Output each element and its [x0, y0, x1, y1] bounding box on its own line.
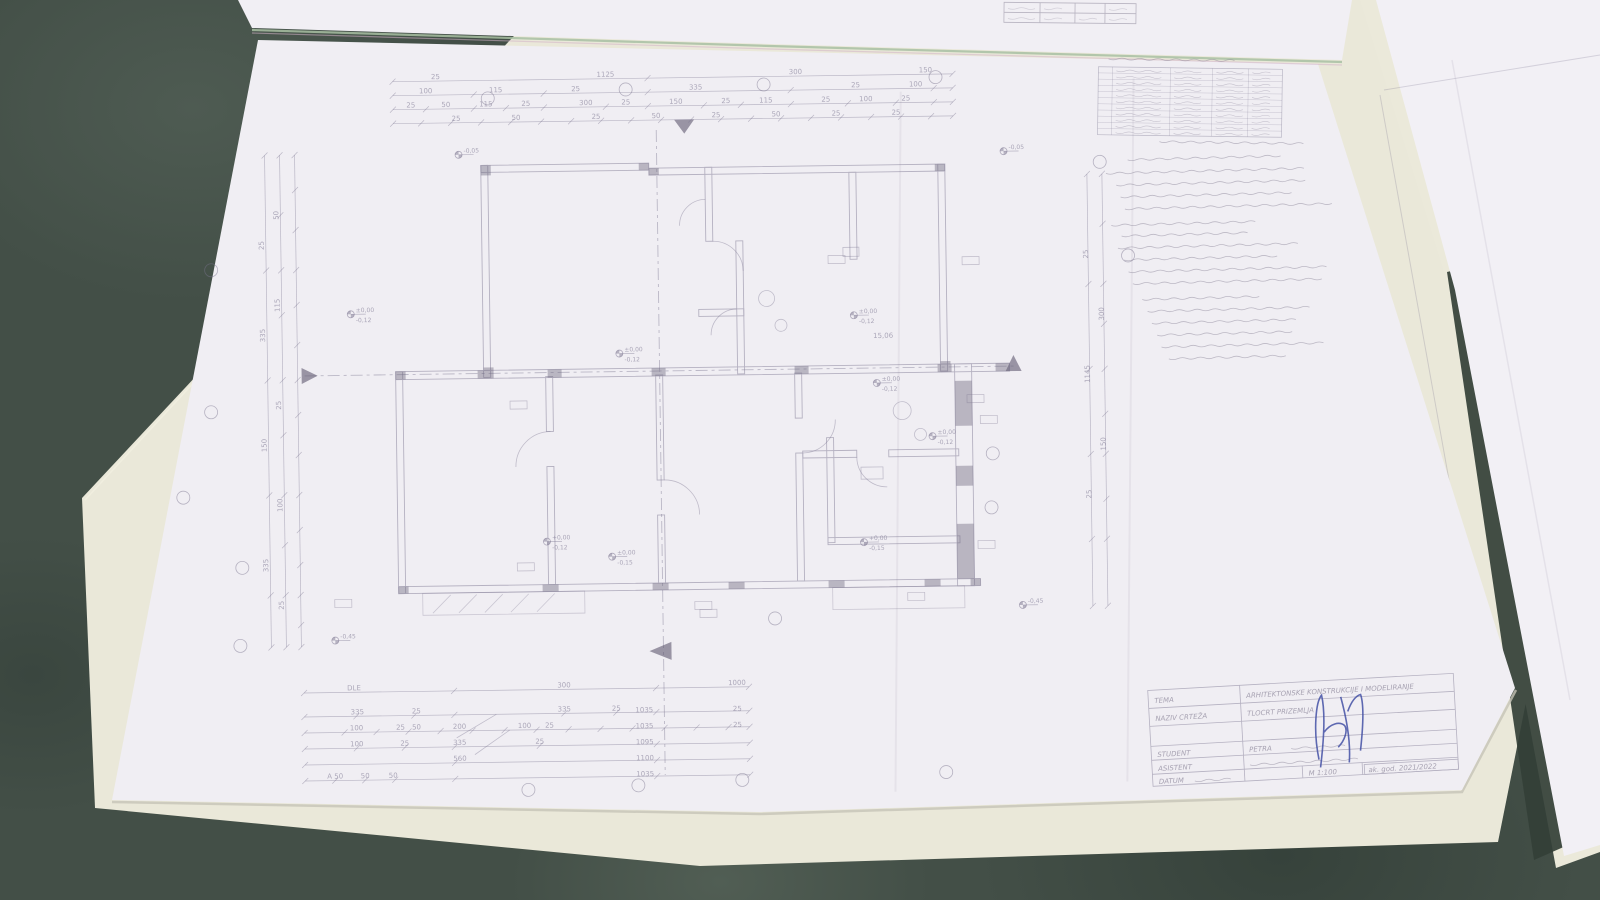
dim-label: 25: [821, 96, 830, 104]
dim-label: 25: [733, 705, 742, 713]
elevation-value: +0,00: [552, 534, 571, 541]
dim-label: 150: [1100, 437, 1108, 450]
dim-label: 25: [278, 601, 286, 610]
dim-label: 25: [721, 97, 730, 105]
dim-label: 100: [909, 80, 922, 88]
dim-label: 25: [396, 724, 405, 732]
dim-label: 335: [453, 739, 466, 747]
dim-label: 1035: [635, 706, 653, 714]
dim-label: 25: [412, 707, 421, 715]
dim-label: 25: [612, 705, 621, 713]
dim-label: 25: [545, 722, 554, 730]
dim-label: 25: [400, 740, 409, 748]
dim-label: 100: [276, 499, 284, 512]
title-value: PETRA: [1249, 745, 1272, 754]
dim-label: 50: [772, 110, 781, 118]
dim-label: 300: [557, 681, 570, 689]
elevation-value: ±0,00: [356, 307, 375, 314]
dim-label: 560: [453, 755, 466, 763]
dim-label: 335: [558, 705, 571, 713]
dim-label: 25: [535, 738, 544, 746]
elevation-value: -0,15: [617, 559, 633, 566]
elevation-value: -0,12: [859, 318, 875, 325]
elevation-value: -0,45: [1028, 598, 1044, 605]
surfaces: [82, 0, 1600, 868]
elevation-value: -0,15: [869, 545, 885, 552]
dim-label: 25: [592, 113, 601, 121]
elevation-value: -0,12: [938, 439, 954, 446]
elevation-value: ±0,00: [859, 308, 878, 315]
dim-label: 150: [669, 98, 682, 106]
dim-label: 1100: [636, 754, 654, 762]
dim-label: 25: [1085, 489, 1093, 498]
dim-label: 300: [789, 68, 802, 76]
elevation-value: ±0,00: [937, 429, 956, 436]
elevation-value: -0,05: [1008, 144, 1024, 151]
elevation-value: -0,12: [624, 356, 640, 363]
scale-value: M 1:100: [1308, 768, 1337, 778]
elevation-value: -0,45: [340, 633, 356, 640]
dim-label: 335: [259, 329, 267, 342]
drawing-photo: 2511253001501001152533525100255011525300…: [0, 0, 1600, 900]
dim-label: 1145: [1084, 365, 1092, 383]
dim-label: DLE: [347, 684, 361, 692]
dim-label: 50: [272, 211, 280, 220]
dim-label: 25: [733, 721, 742, 729]
dim-label: 25: [275, 401, 283, 410]
dim-label: 100: [419, 87, 432, 95]
dim-label: 100: [518, 722, 531, 730]
dim-label: 100: [859, 95, 872, 103]
dim-label: 50: [652, 112, 661, 120]
photo-scene: 2511253001501001152533525100255011525300…: [0, 0, 1600, 900]
dim-label: 1125: [596, 71, 614, 79]
dim-label: 335: [351, 708, 364, 716]
dim-label: 1095: [636, 738, 654, 746]
elevation-value: -0,12: [356, 317, 372, 324]
dim-label: 25: [621, 98, 630, 106]
dim-label: 25: [571, 85, 580, 93]
dim-label: 25: [1082, 250, 1090, 259]
dim-label: 50: [389, 772, 398, 780]
dim-label: 25: [452, 115, 461, 123]
dim-label: 15,06: [873, 332, 894, 340]
dim-label: 50: [512, 114, 521, 122]
elevation-value: +0,00: [869, 535, 888, 542]
dim-label: 25: [891, 109, 900, 117]
elevation-value: ±0,00: [624, 346, 643, 353]
dim-label: A 50: [327, 772, 343, 780]
dim-label: 335: [689, 83, 702, 91]
dim-label: 1000: [728, 679, 746, 687]
dim-label: 335: [262, 559, 270, 572]
dim-label: 25: [521, 100, 530, 108]
dim-label: 1035: [636, 770, 654, 778]
title-label: DATUM: [1159, 777, 1185, 786]
dim-label: 25: [406, 101, 415, 109]
dim-label: 115: [274, 299, 282, 312]
dim-label: 300: [1098, 307, 1106, 320]
elevation-value: ±0,00: [617, 549, 636, 556]
dim-label: 100: [350, 724, 363, 732]
dim-label: 25: [832, 109, 841, 117]
dim-label: 200: [453, 723, 466, 731]
dim-label: 300: [579, 99, 592, 107]
dim-label: 25: [431, 73, 440, 81]
dim-label: 50: [361, 772, 370, 780]
dim-label: 50: [412, 723, 421, 731]
dim-label: 1035: [636, 722, 654, 730]
dim-label: 50: [441, 101, 450, 109]
title-label: TEMA: [1154, 696, 1174, 705]
dim-label: 100: [350, 740, 363, 748]
dim-label: 115: [759, 96, 772, 104]
elevation-value: -0,12: [552, 544, 568, 551]
dim-label: 25: [258, 241, 266, 250]
dim-label: 25: [712, 111, 721, 119]
elevation-value: -0,05: [463, 148, 479, 155]
elevation-value: -0,12: [882, 386, 898, 393]
dim-label: 25: [851, 81, 860, 89]
elevation-value: ±0,00: [882, 376, 901, 383]
dim-label: 150: [261, 439, 269, 452]
dim-label: 25: [901, 94, 910, 102]
